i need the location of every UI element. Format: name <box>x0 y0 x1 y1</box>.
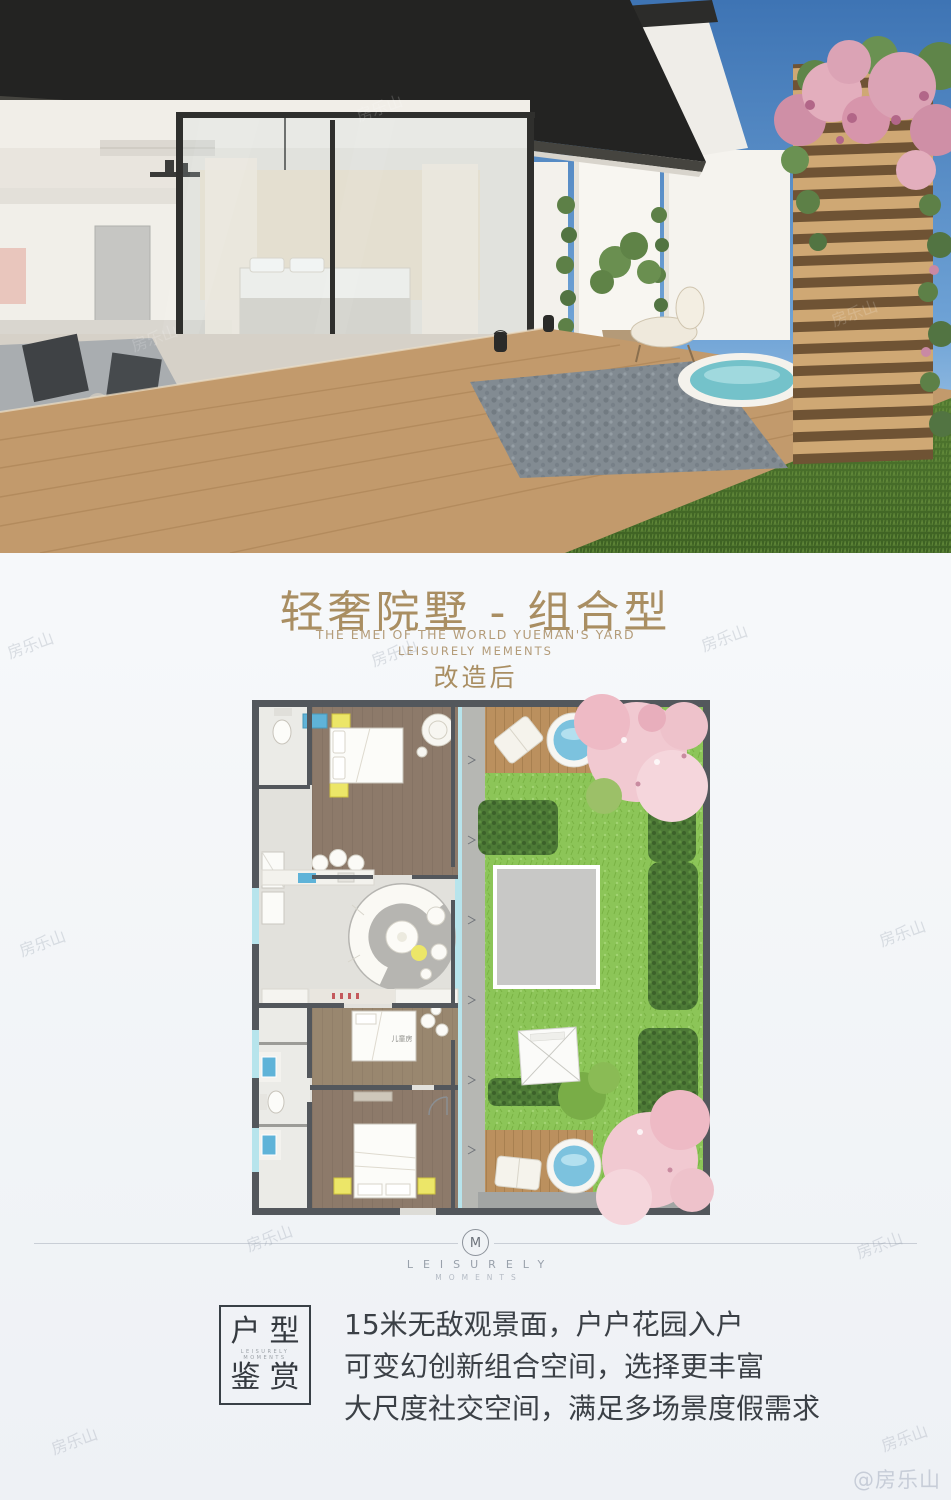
watermark-tile: 房乐山 <box>877 1418 930 1457</box>
garden-platform <box>495 867 598 987</box>
villa-photo-scene <box>0 0 951 553</box>
watermark-handle: @房乐山 <box>853 1464 941 1494</box>
phase-label: 改造后 <box>0 658 951 694</box>
hot-tub <box>678 353 806 407</box>
feature-box: 户型 LEISURELY MOMENTS 鉴赏 <box>219 1305 311 1405</box>
brand-name-sub: MOMENTS <box>0 1273 951 1282</box>
watermark-tile: 房乐山 <box>242 1218 295 1257</box>
garden-tent <box>518 1027 580 1085</box>
feature-box-title-bottom: 鉴赏 <box>222 1361 309 1395</box>
feature-line: 可变幻创新组合空间，选择更丰富 <box>344 1346 824 1388</box>
watermark-tile: 房乐山 <box>15 923 68 962</box>
floor-plan: 儿童房 <box>252 700 710 1218</box>
poster: 轻奢院墅 - 组合型 THE EMEI OF THE WORLD YUEMAN'… <box>0 0 951 1500</box>
floor-plan-drawing: 儿童房 <box>252 700 710 1215</box>
cherry-tree-top <box>574 694 708 822</box>
watermark-tile: 房乐山 <box>47 1421 100 1460</box>
feature-lines: 15米无敌观景面，户户花园入户 可变幻创新组合空间，选择更丰富 大尺度社交空间，… <box>344 1304 824 1430</box>
feature-box-title-top: 户型 <box>222 1315 309 1349</box>
garden-hot-tub-bottom <box>547 1139 601 1193</box>
watermark-tile: 房乐山 <box>875 913 928 952</box>
subtitle-en-2: LEISURELY MEMENTS <box>0 644 951 658</box>
subtitle-en-1: THE EMEI OF THE WORLD YUEMAN'S YARD <box>0 627 951 642</box>
brand-name: LEISURELY <box>0 1258 951 1271</box>
plan-windows <box>252 888 259 1172</box>
feature-line: 15米无敌观景面，户户花园入户 <box>344 1304 824 1346</box>
feature-line: 大尺度社交空间，满足多场景度假需求 <box>344 1388 824 1430</box>
garden-lounger-bottom <box>495 1156 542 1190</box>
kids-room-label: 儿童房 <box>392 1034 413 1043</box>
entrance-gap <box>400 1208 436 1215</box>
kitchen-cabinet-row <box>262 989 458 1004</box>
bathroom-top <box>273 708 292 744</box>
villa-photo <box>0 0 951 553</box>
brand-monogram: M <box>462 1229 489 1256</box>
